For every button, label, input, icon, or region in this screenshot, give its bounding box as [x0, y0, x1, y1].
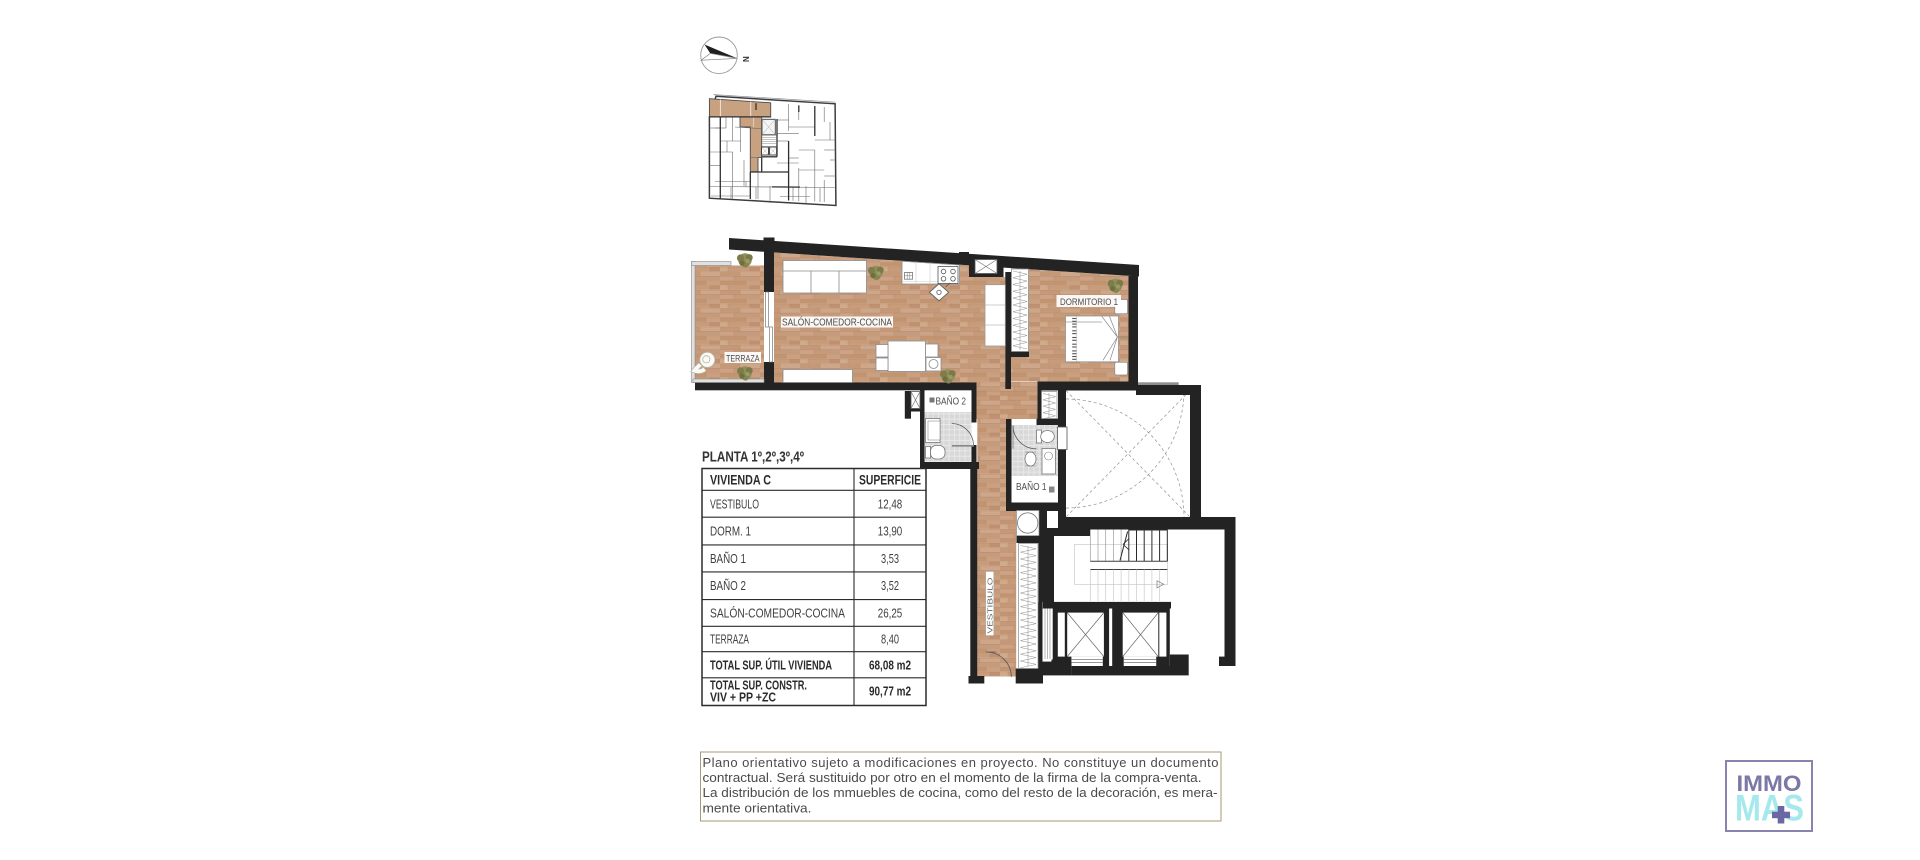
svg-text:DORMITORIO 1: DORMITORIO 1 — [1060, 297, 1118, 308]
svg-text:VESTIBULO: VESTIBULO — [985, 577, 994, 633]
svg-text:MAS: MAS — [1735, 788, 1804, 829]
svg-text:PLANTA 1º,2º,3º,4º: PLANTA 1º,2º,3º,4º — [702, 450, 805, 466]
svg-text:VIV + PP +ZC: VIV + PP +ZC — [710, 691, 776, 705]
svg-text:68,08 m2: 68,08 m2 — [869, 658, 911, 672]
svg-text:DORM. 1: DORM. 1 — [710, 525, 751, 539]
svg-text:26,25: 26,25 — [878, 606, 903, 620]
svg-text:TERRAZA: TERRAZA — [726, 353, 760, 364]
svg-text:BAÑO 2: BAÑO 2 — [710, 579, 746, 593]
svg-text:TERRAZA: TERRAZA — [710, 633, 749, 647]
svg-text:8,40: 8,40 — [881, 633, 899, 647]
svg-text:TOTAL SUP. ÚTIL VIVIENDA: TOTAL SUP. ÚTIL VIVIENDA — [710, 657, 832, 672]
svg-text:12,48: 12,48 — [878, 497, 903, 511]
svg-text:VIVIENDA C: VIVIENDA C — [710, 473, 771, 488]
svg-text:SUPERFICIE: SUPERFICIE — [859, 473, 921, 488]
svg-text:BAÑO 2: BAÑO 2 — [936, 395, 967, 408]
svg-text:N: N — [741, 56, 750, 62]
svg-text:BAÑO 1: BAÑO 1 — [710, 552, 746, 566]
svg-text:90,77 m2: 90,77 m2 — [869, 685, 911, 699]
svg-text:mente orientativa.: mente orientativa. — [703, 800, 812, 815]
svg-text:La distribución de los mmueble: La distribución de los mmuebles de cocin… — [703, 785, 1218, 800]
svg-text:13,90: 13,90 — [878, 525, 903, 539]
svg-text:SALÓN-COMEDOR-COCINA: SALÓN-COMEDOR-COCINA — [782, 316, 892, 329]
svg-text:contractual. Será sustituido p: contractual. Será sustituido por otro en… — [703, 770, 1202, 785]
svg-text:3,53: 3,53 — [881, 552, 899, 566]
svg-text:Plano orientativo sujeto a mod: Plano orientativo sujeto a modificacione… — [703, 755, 1219, 770]
svg-text:SALÓN-COMEDOR-COCINA: SALÓN-COMEDOR-COCINA — [710, 605, 846, 620]
svg-text:VESTIBULO: VESTIBULO — [710, 497, 759, 511]
svg-text:3,52: 3,52 — [881, 579, 899, 593]
svg-text:BAÑO 1: BAÑO 1 — [1016, 480, 1047, 493]
